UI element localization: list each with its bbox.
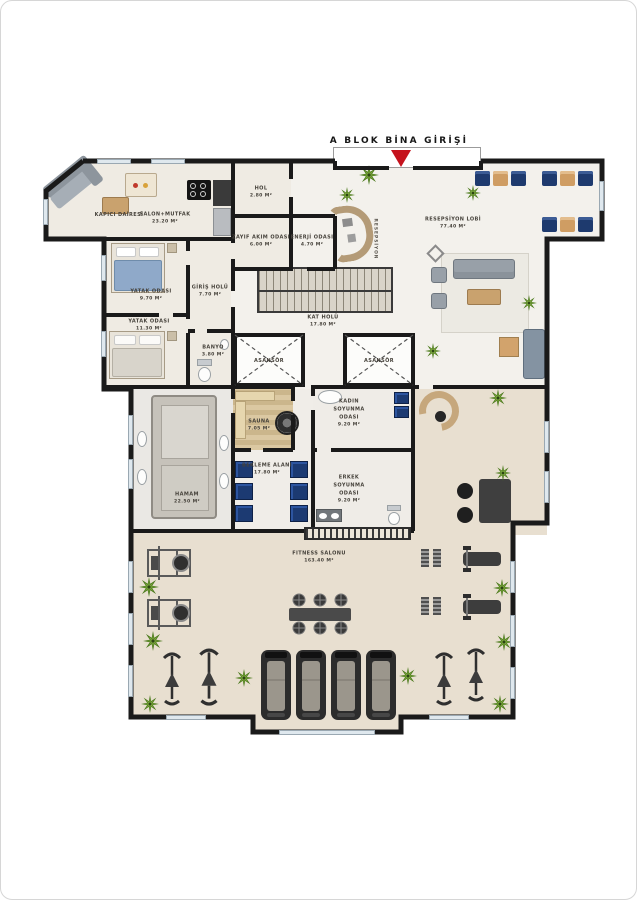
- window: [429, 715, 469, 720]
- entrance-marker-icon: [391, 150, 411, 167]
- window: [128, 459, 133, 489]
- room-label-banyo: BANYO 3.80 M²: [202, 343, 224, 358]
- room-label-kadin: KADIN SOYUNMA ODASI 9.20 M²: [326, 397, 372, 428]
- hatched-wall: [304, 527, 411, 540]
- room-label-bekleme: BEKLEME ALANI 17.80 M²: [242, 461, 292, 476]
- room-label-asansor2: ASANSÖR: [364, 357, 394, 365]
- window: [510, 615, 515, 647]
- window: [510, 561, 515, 593]
- room-label-asansor1: ASANSÖR: [254, 357, 284, 365]
- window: [128, 665, 133, 697]
- room-label-kapici: KAPICI DAİRESİ: [95, 211, 144, 219]
- room-label-giris: GİRİŞ HOLÜ 7.70 M²: [192, 283, 229, 298]
- window: [544, 421, 549, 453]
- window: [97, 159, 131, 164]
- window: [279, 730, 375, 735]
- room-label-resepsiyon: RESEPSİYON: [371, 219, 378, 260]
- window: [101, 255, 106, 281]
- room-label-erkek: ERKEK SOYUNMA ODASI 9.20 M²: [326, 473, 372, 504]
- window: [128, 613, 133, 645]
- room-label-hamam: HAMAM 22.50 M²: [174, 490, 200, 505]
- room-label-kat: KAT HOLÜ 17.80 M²: [307, 313, 338, 328]
- room-label-lobi: RESEPSİYON LOBİ 77.40 M²: [425, 215, 481, 230]
- floor-plan-page: A BLOK BİNA GİRİŞİ KAPICI DAİRESİ SALON+…: [0, 0, 637, 900]
- window: [166, 715, 206, 720]
- room-label-hol: HOL 2.80 M²: [250, 184, 272, 199]
- room-label-yatak1: YATAK ODASI 9.70 M²: [130, 287, 171, 302]
- room-label-salon: SALON+MUTFAK 23.20 M²: [140, 210, 191, 225]
- room-label-fitness: FITNESS SALONU 163.40 M²: [292, 549, 346, 564]
- window: [599, 181, 604, 211]
- entrance-title: A BLOK BİNA GİRİŞİ: [330, 136, 468, 146]
- room-label-enerji: ENERJİ ODASI 4.70 M²: [289, 233, 335, 248]
- window: [128, 415, 133, 445]
- window: [101, 331, 106, 357]
- room-label-yatak2: YATAK ODASI 11.30 M²: [128, 317, 169, 332]
- walls: [1, 1, 637, 900]
- window: [544, 471, 549, 503]
- room-label-sauna: SAUNA 7.05 M²: [248, 417, 270, 432]
- window: [128, 561, 133, 593]
- window: [43, 199, 48, 225]
- window: [151, 159, 185, 164]
- room-label-zayif: ZAYIF AKIM ODASI 6.00 M²: [232, 233, 290, 248]
- window: [510, 667, 515, 699]
